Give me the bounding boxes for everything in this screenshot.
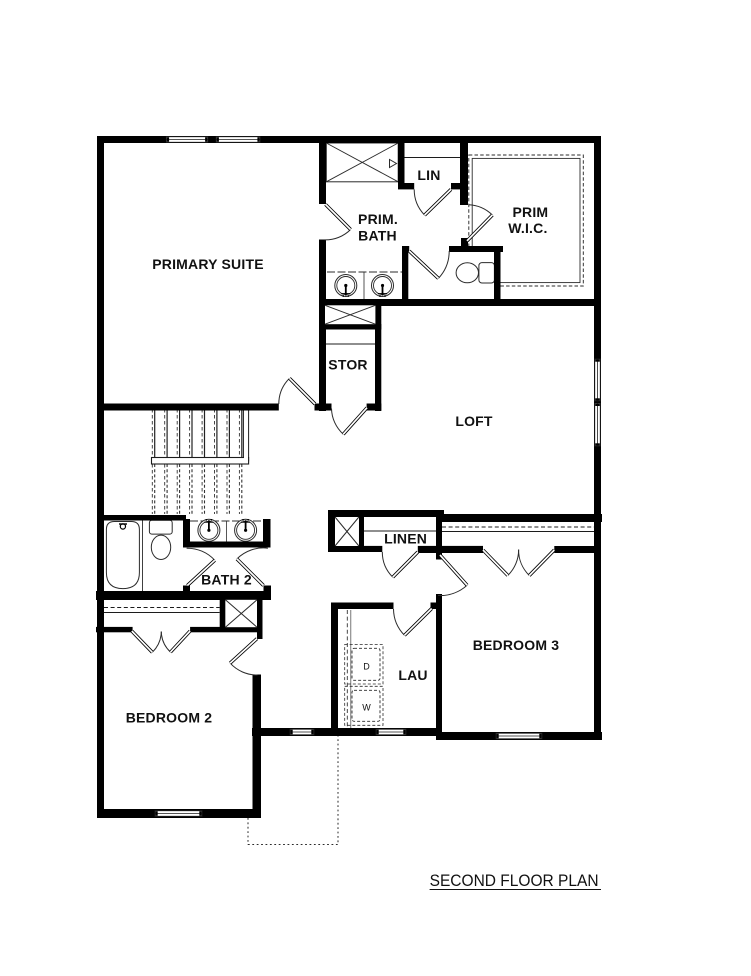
svg-text:PRIMARY SUITE: PRIMARY SUITE bbox=[152, 256, 264, 272]
svg-text:BATH: BATH bbox=[358, 228, 397, 244]
svg-text:W: W bbox=[362, 703, 371, 713]
svg-text:PRIM.: PRIM. bbox=[358, 211, 398, 227]
svg-text:BEDROOM 3: BEDROOM 3 bbox=[473, 637, 560, 653]
svg-text:SECOND FLOOR PLAN: SECOND FLOOR PLAN bbox=[430, 872, 599, 890]
svg-text:LOFT: LOFT bbox=[455, 413, 493, 429]
svg-text:BEDROOM 2: BEDROOM 2 bbox=[126, 710, 213, 726]
svg-text:LAU: LAU bbox=[398, 667, 427, 683]
svg-text:STOR: STOR bbox=[328, 356, 367, 372]
svg-text:W.I.C.: W.I.C. bbox=[508, 220, 547, 236]
svg-text:BATH 2: BATH 2 bbox=[201, 572, 252, 588]
svg-text:LINEN: LINEN bbox=[384, 530, 427, 546]
svg-text:PRIM: PRIM bbox=[512, 204, 548, 220]
svg-text:D: D bbox=[363, 662, 370, 672]
svg-text:LIN: LIN bbox=[417, 167, 440, 183]
